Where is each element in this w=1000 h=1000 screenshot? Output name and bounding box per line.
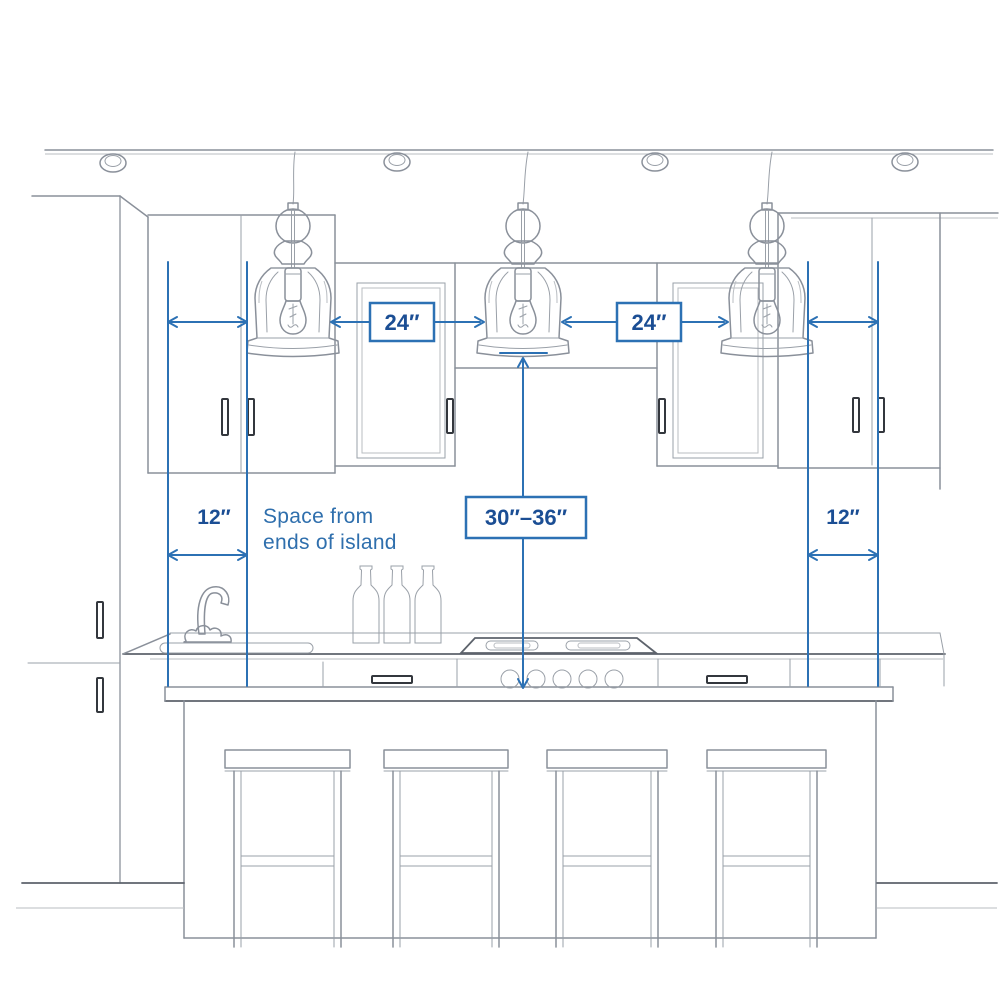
note-line-2: ends of island	[263, 531, 397, 554]
recessed-light-icon	[642, 153, 668, 171]
bar-stool	[225, 750, 350, 947]
burner-knob	[553, 670, 571, 688]
label-end-space-right: 12″	[826, 506, 859, 529]
cabinet-handle	[659, 399, 665, 433]
diagram-canvas: 24″ 24″ 30″–36″ 12″ 12″ Space from ends …	[0, 0, 1000, 1000]
pendant-lights	[247, 152, 813, 357]
wine-bottles	[353, 566, 441, 643]
label-pendant-spacing-left: 24″	[384, 310, 419, 335]
label-pendant-spacing-right: 24″	[631, 310, 666, 335]
burner-knob	[501, 670, 519, 688]
upper-cabinet-glass-left	[335, 263, 455, 466]
note-line-1: Space from	[263, 505, 373, 528]
floor-lines	[16, 883, 997, 908]
upper-cabinets	[148, 213, 998, 489]
drawer-handle	[707, 676, 747, 683]
recessed-light-icon	[384, 153, 410, 171]
bar-stool	[547, 750, 667, 947]
pendant-light-icon	[721, 203, 813, 357]
ceiling	[45, 150, 993, 154]
cabinet-handle	[853, 398, 859, 432]
sink	[160, 643, 313, 653]
recessed-light-icon	[892, 153, 918, 171]
cabinet-handle	[97, 602, 103, 638]
drawer-handle	[372, 676, 412, 683]
pendant-light-icon	[247, 203, 339, 357]
pendant-cord	[523, 152, 528, 204]
upper-cabinet-right	[778, 213, 998, 489]
cabinet-handle	[97, 678, 103, 712]
label-hang-height: 30″–36″	[485, 505, 568, 530]
burner-knob	[527, 670, 545, 688]
label-end-space-left: 12″	[197, 506, 230, 529]
cabinet-handle	[447, 399, 453, 433]
pendant-light-icon	[477, 203, 569, 357]
burner-knob	[605, 670, 623, 688]
recessed-lights	[100, 153, 918, 172]
bar-stools	[225, 750, 826, 947]
cooktop	[461, 638, 656, 688]
bottle-icon	[384, 566, 410, 643]
cabinet-handle	[222, 399, 228, 435]
upper-cabinet-left	[148, 215, 335, 473]
upper-cabinet-glass-right	[657, 263, 778, 466]
pendant-cord	[767, 152, 772, 204]
bar-stool	[707, 750, 826, 947]
bottle-icon	[415, 566, 441, 643]
bottle-icon	[353, 566, 379, 643]
cabinet-handle	[248, 399, 254, 435]
burner-knobs	[501, 670, 623, 688]
left-wall	[28, 196, 148, 883]
kitchen-lighting-diagram: 24″ 24″ 30″–36″ 12″ 12″ Space from ends …	[0, 0, 1000, 1000]
recessed-light-icon	[100, 154, 126, 172]
island	[165, 687, 893, 938]
faucet-icon	[184, 587, 231, 642]
bar-stool	[384, 750, 508, 947]
burner-knob	[579, 670, 597, 688]
pendant-cord	[293, 152, 295, 204]
